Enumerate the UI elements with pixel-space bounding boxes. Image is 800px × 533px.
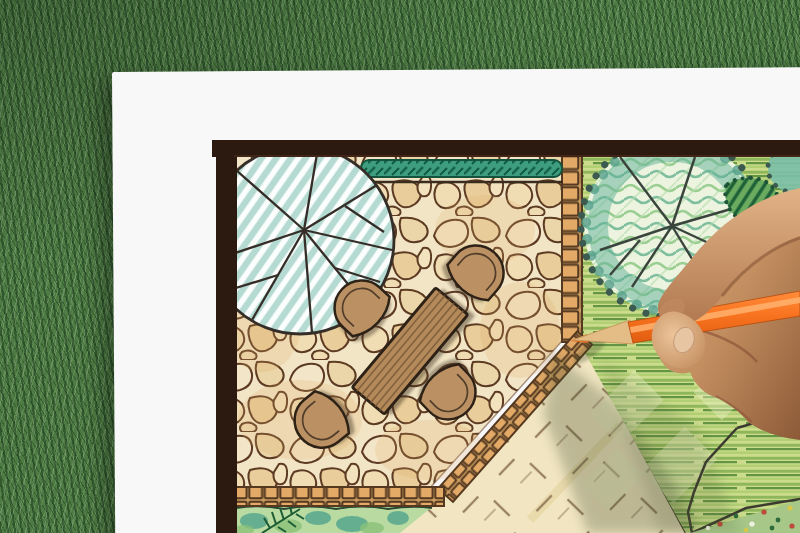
planting-bed-bottom (234, 506, 432, 533)
photo-scene: { "scene": { "type": "photograph", "desc… (0, 0, 800, 533)
brick-edging-vertical (562, 156, 582, 342)
brick-edging-bottom (236, 487, 444, 506)
plan-illustration (0, 0, 800, 533)
